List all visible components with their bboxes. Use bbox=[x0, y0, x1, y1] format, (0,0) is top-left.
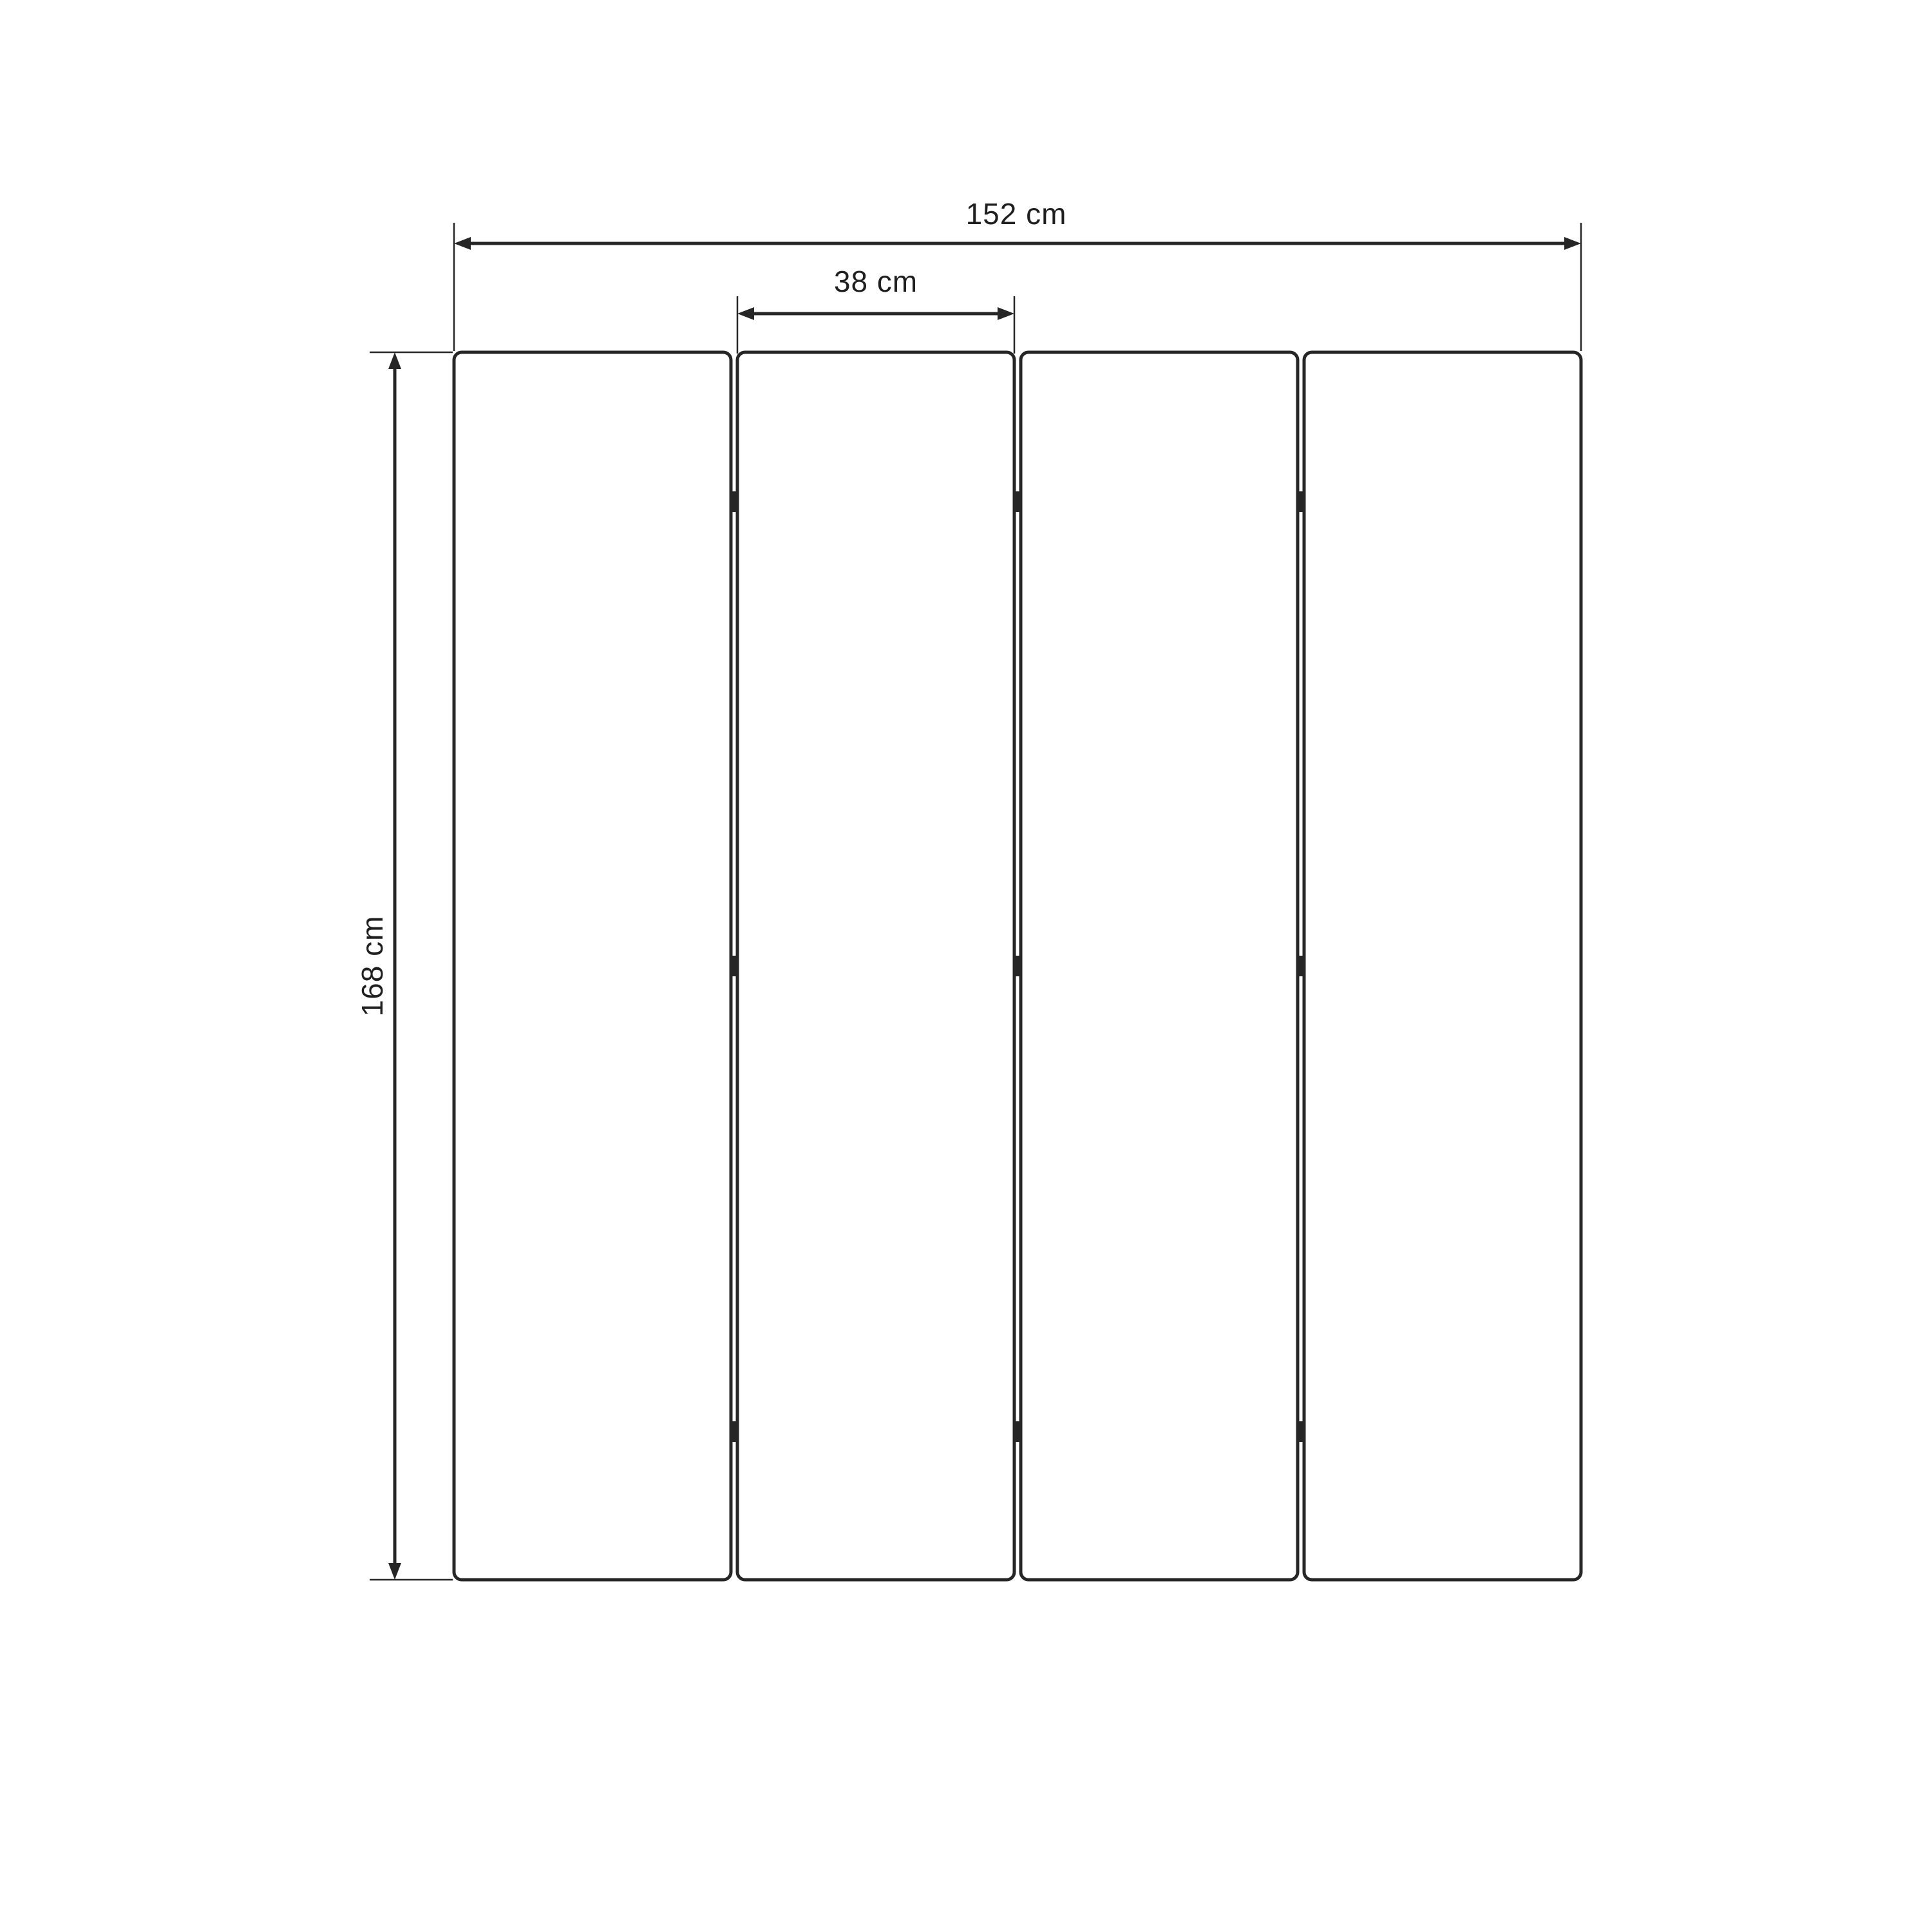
hinge-mark bbox=[730, 491, 739, 512]
panel-width-label: 38 cm bbox=[834, 265, 918, 298]
panel-3 bbox=[1021, 352, 1298, 1580]
hinge-mark bbox=[1013, 956, 1022, 976]
hinge-mark bbox=[1013, 491, 1022, 512]
panel-4 bbox=[1304, 352, 1581, 1580]
height-label: 168 cm bbox=[355, 916, 389, 1017]
hinge-mark bbox=[1013, 1421, 1022, 1442]
dimension-diagram: 152 cm 38 cm 168 cm bbox=[0, 0, 1932, 1932]
panel-2 bbox=[737, 352, 1014, 1580]
total-width-label: 152 cm bbox=[966, 197, 1067, 231]
hinge-mark bbox=[730, 956, 739, 976]
hinge-mark bbox=[1296, 956, 1305, 976]
hinge-mark bbox=[1296, 1421, 1305, 1442]
hinge-mark bbox=[730, 1421, 739, 1442]
panel-1 bbox=[454, 352, 731, 1580]
hinge-mark bbox=[1296, 491, 1305, 512]
